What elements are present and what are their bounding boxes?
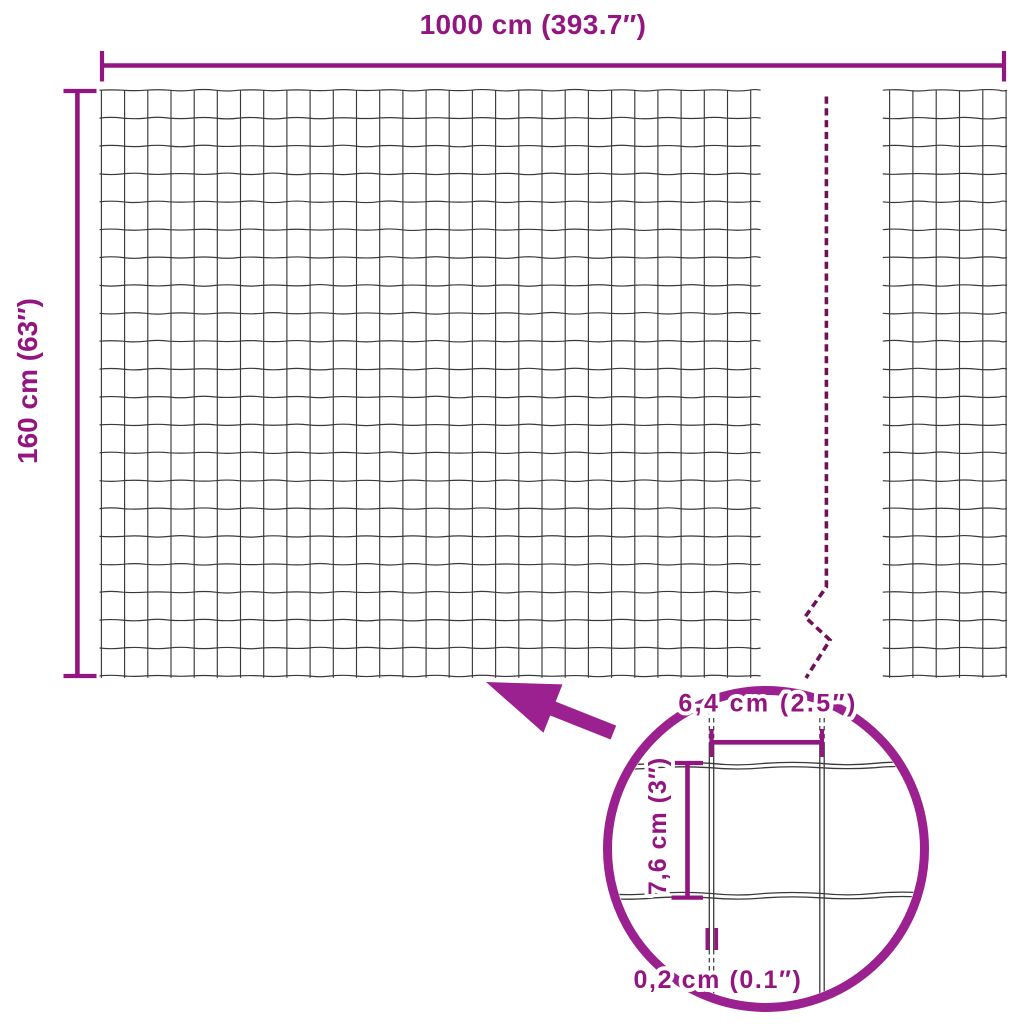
- svg-text:1000 cm (393.7″): 1000 cm (393.7″): [420, 9, 647, 40]
- svg-text:0,2 cm (0.1″): 0,2 cm (0.1″): [634, 966, 803, 994]
- svg-text:160 cm (63″): 160 cm (63″): [12, 298, 43, 464]
- svg-text:6,4 cm (2.5″): 6,4 cm (2.5″): [678, 690, 857, 718]
- svg-text:7,6 cm (3″): 7,6 cm (3″): [644, 757, 672, 895]
